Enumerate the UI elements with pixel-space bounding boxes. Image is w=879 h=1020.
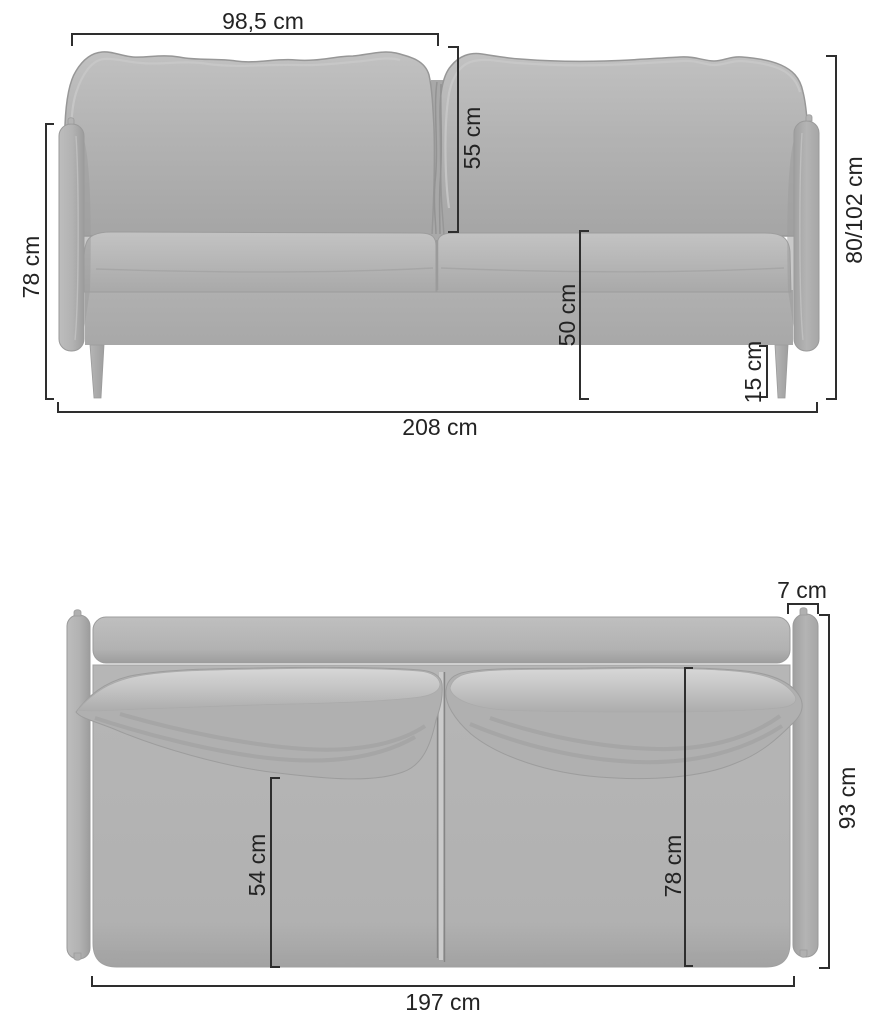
svg-text:197 cm: 197 cm: [405, 989, 480, 1015]
svg-text:78 cm: 78 cm: [660, 835, 686, 898]
svg-text:55 cm: 55 cm: [459, 107, 485, 170]
svg-text:208 cm: 208 cm: [402, 414, 477, 440]
svg-text:98,5 cm: 98,5 cm: [222, 8, 304, 34]
svg-text:93 cm: 93 cm: [834, 767, 860, 830]
svg-text:80/102 cm: 80/102 cm: [841, 156, 867, 263]
svg-text:50 cm: 50 cm: [554, 284, 580, 347]
svg-text:15 cm: 15 cm: [740, 341, 766, 404]
svg-text:7 cm: 7 cm: [777, 577, 827, 603]
svg-text:54 cm: 54 cm: [244, 834, 270, 897]
svg-text:78 cm: 78 cm: [18, 236, 44, 299]
